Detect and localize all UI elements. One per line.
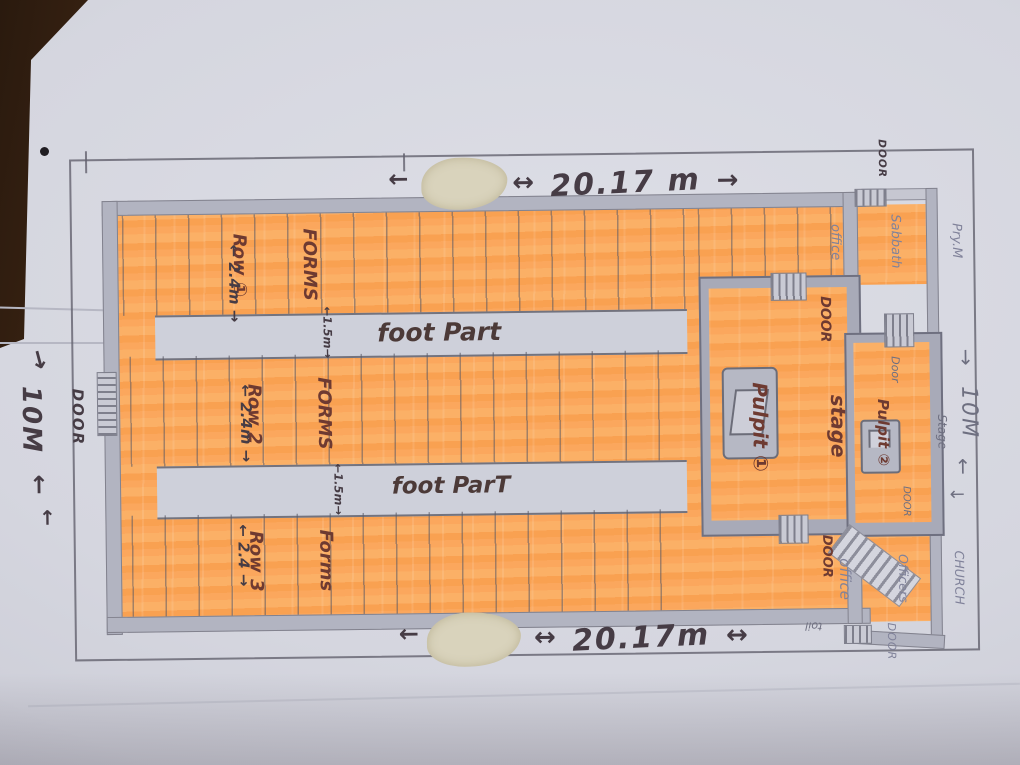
stage-1-door-top-label: DOOR xyxy=(816,296,835,342)
stage-bottom-door-hatch xyxy=(778,514,808,543)
stage-2-line2: Pulpit ② xyxy=(873,399,893,466)
forms-row-1-width: ← 2.4m → xyxy=(223,244,243,322)
top-right-door-hatch xyxy=(854,189,886,207)
dimension-top-label: ↔ 20.17 m → xyxy=(512,162,739,204)
church-office-line2: Officers xyxy=(893,551,912,605)
photo-of-floor-plan: ← ↔ 20.17 m → ← ↔ 20.17m ↔ ↓ 10M ↑ ↑ ↓ 1… xyxy=(0,0,1020,765)
dimension-bottom-text: 20.17m xyxy=(571,615,711,660)
sabbath-office-line2: Sabbath xyxy=(885,214,906,268)
church-office-label: CHURCH Officers office xyxy=(796,550,1007,607)
bottom-right-door-hatch xyxy=(844,625,872,644)
boundary-tick xyxy=(85,151,87,173)
church-office-line3: office xyxy=(833,552,856,606)
stage-1-line2: Pulpit ① xyxy=(747,382,774,472)
forms-row-3-label: Forms Row 3 xyxy=(197,529,385,593)
church-office-line1: CHURCH xyxy=(950,550,969,604)
forms-row-2-line1: FORMS xyxy=(312,377,336,450)
dimension-top-arrow-mid: ↔ xyxy=(512,167,534,201)
stage-2-line1: Stage xyxy=(934,398,950,465)
dimension-top-text: 20.17 m xyxy=(549,160,701,206)
footpath-1-label: foot Part xyxy=(377,316,501,350)
dimension-left-arrow-bottom2: ↑ xyxy=(39,505,56,531)
forms-row-3-line1: Forms xyxy=(314,529,338,591)
dimension-bottom-arrow-mid: ↔ xyxy=(534,622,556,656)
dimension-left-label: 10M xyxy=(13,386,48,454)
forms-row-1-label: FORMS Row ① xyxy=(180,228,368,303)
sabbath-office-line1: Pry.M xyxy=(945,214,966,268)
door-top-right-label: DOOR xyxy=(874,139,888,178)
dimension-left-arrow-bottom: ↑ xyxy=(29,470,49,501)
dimension-bottom-arrow-left: ← xyxy=(399,619,419,650)
dimension-left-arrow-top: ↓ xyxy=(26,343,53,378)
footpath-2-label: foot ParT xyxy=(392,471,511,502)
forms-row-3-width: ← 2.4 → xyxy=(233,524,253,586)
stage-top-door-hatch xyxy=(770,272,806,300)
sabbath-office-line3: office xyxy=(824,215,845,269)
door-bottom-right-label: DOOR xyxy=(884,623,899,661)
left-door-leaf xyxy=(97,372,118,436)
dimension-bottom-label: ↔ 20.17m ↔ xyxy=(534,617,748,659)
small-pencil-note: toil xyxy=(805,618,822,633)
dimension-top-arrow-left: ← xyxy=(388,164,408,195)
forms-row-2-label: FORMS Row 2 xyxy=(195,377,383,452)
dimension-right-arrow-side: ← xyxy=(949,483,964,507)
stage-2-door-top-label: Door xyxy=(887,356,902,383)
dimension-bottom-arrow-right: ↔ xyxy=(726,619,748,653)
door-left-label: DOOR xyxy=(67,389,87,447)
floor-plan-drawing: ← ↔ 20.17 m → ← ↔ 20.17m ↔ ↓ 10M ↑ ↑ ↓ 1… xyxy=(0,0,1020,765)
forms-row-1-line1: FORMS xyxy=(297,228,321,301)
dimension-right-arrow-top: ↓ xyxy=(957,344,974,370)
stage-2-label: Stage Pulpit ② xyxy=(831,398,992,467)
footpath-1-width: ←1.5m→ xyxy=(319,306,335,358)
correction-fluid-smudge-bottom xyxy=(427,612,522,667)
stage-2-door-bottom-label: DOOR xyxy=(900,486,913,517)
footpath-2-width: ←1.5m→ xyxy=(330,463,346,515)
sabbath-office-label: Pry.M Sabbath office xyxy=(784,213,1006,270)
stage2-top-door-hatch xyxy=(884,313,914,347)
forms-row-2-width: ← 2.4m → xyxy=(235,384,255,462)
dimension-top-arrow-right: → xyxy=(716,164,738,198)
